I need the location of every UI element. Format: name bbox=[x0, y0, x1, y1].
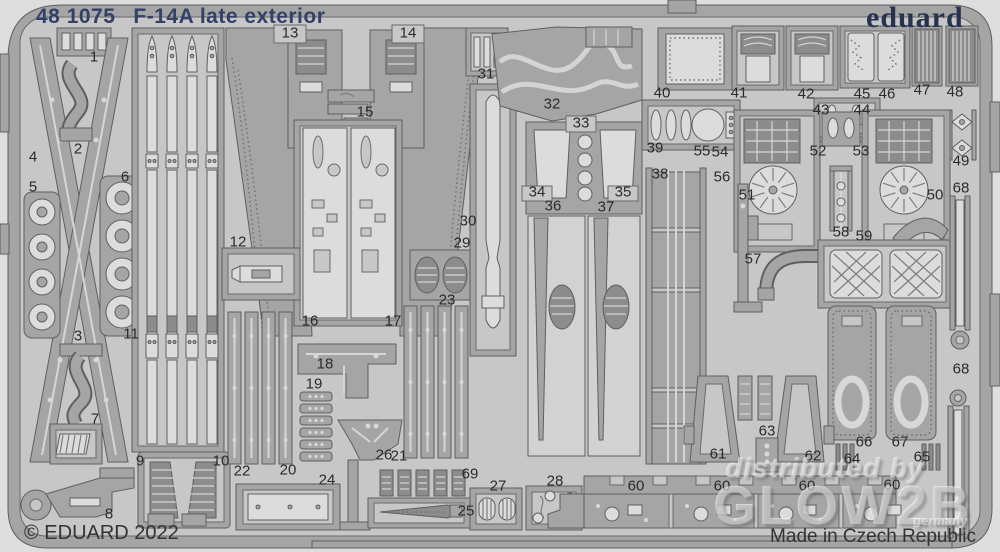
sheet-graphic bbox=[0, 0, 1000, 552]
part-shape-16-17 bbox=[294, 120, 402, 326]
part-shape-32-squiggle bbox=[492, 27, 642, 121]
part-shape-25 bbox=[368, 498, 470, 528]
part-shape-11-missiles bbox=[132, 28, 224, 452]
part-shape-69-teeth bbox=[380, 470, 465, 496]
part-shape-68-lower bbox=[948, 390, 969, 538]
part-shape-45-46-panels bbox=[840, 26, 910, 88]
part-shape-33-35-trapezoids bbox=[522, 116, 642, 214]
part-shape-29-ovals bbox=[410, 250, 474, 300]
part-shape-68-upper bbox=[950, 196, 970, 349]
part-shape-1 bbox=[57, 28, 111, 56]
copyright-text: © EDUARD 2022 bbox=[24, 522, 179, 545]
part-shape-7 bbox=[50, 424, 102, 464]
part-shape-42-seat bbox=[786, 26, 838, 90]
part-shape-41-seat bbox=[732, 26, 784, 90]
part-shape-30 bbox=[470, 84, 516, 356]
part-shape-5-rings bbox=[24, 192, 60, 338]
part-shape-12 bbox=[222, 248, 300, 300]
made-in-text: Made in Czech Republic bbox=[770, 526, 976, 548]
part-shape-15 bbox=[328, 90, 374, 114]
part-shape-9-10-combs bbox=[138, 452, 230, 528]
part-shape-24 bbox=[236, 484, 340, 530]
eduard-logo: eduard bbox=[866, 1, 964, 35]
catalog-number: 48 1075 bbox=[36, 5, 115, 28]
sheet-title: 48 1075F-14A late exterior bbox=[36, 5, 325, 29]
part-shape-52-53 bbox=[822, 112, 860, 146]
part-shape-27-grilles bbox=[470, 488, 522, 530]
part-shape-36-37-panels bbox=[528, 216, 640, 456]
part-shape-58 bbox=[830, 166, 852, 231]
part-shape-40 bbox=[658, 28, 732, 90]
photoetch-fret-photo: 1234567891011121314151617181920212223242… bbox=[0, 0, 1000, 552]
part-shape-39-54-55 bbox=[642, 100, 740, 150]
part-shape-60-strip bbox=[548, 476, 907, 528]
product-name: F-14A late exterior bbox=[133, 5, 325, 28]
